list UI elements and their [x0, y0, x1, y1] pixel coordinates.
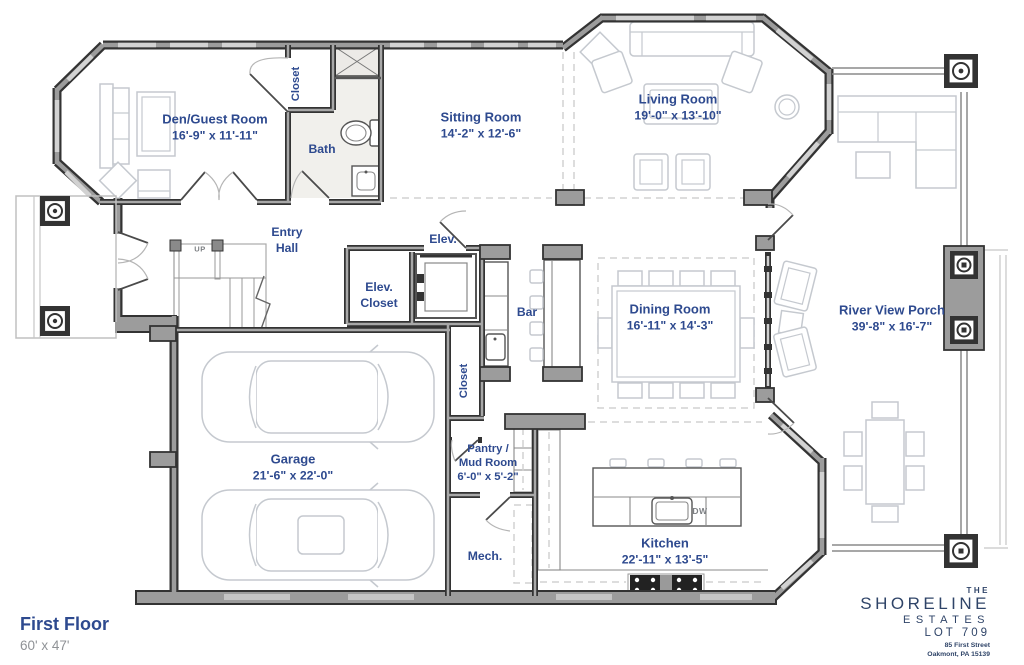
label-kitchen: Kitchen 22'-11" x 13'-5" — [622, 536, 709, 569]
brand-block: THE SHORELINE ESTATES LOT 709 85 First S… — [860, 586, 990, 660]
brand-type: ESTATES — [860, 614, 990, 626]
column-icon — [944, 54, 978, 88]
dining-table-set — [598, 271, 754, 398]
brand-name: SHORELINE — [860, 594, 990, 614]
dishwasher-annotation: DW — [692, 506, 707, 516]
label-garage: Garage 21'-6" x 22'-0" — [253, 452, 333, 485]
column-icon — [944, 534, 978, 568]
plan-title: First Floor — [20, 614, 109, 635]
room-dims: 39'-8" x 16'-7" — [839, 319, 945, 335]
room-dims: 16'-9" x 11'-11" — [162, 128, 267, 144]
room-dims: 21'-6" x 22'-0" — [253, 468, 333, 484]
room-dims: 14'-2" x 12'-6" — [441, 126, 522, 142]
elevator-cab — [416, 254, 476, 318]
label-elev-closet: Elev. Closet — [360, 280, 397, 312]
column-icon — [950, 251, 978, 279]
label-river-view-porch: River View Porch 39'-8" x 16'-7" — [839, 303, 945, 336]
label-pantry-mud-room: Pantry / Mud Room 6'-0" x 5'-2" — [457, 442, 518, 484]
front-double-door — [118, 232, 148, 290]
label-elev: Elev. — [429, 232, 457, 248]
brand-lot: LOT 709 — [860, 627, 990, 639]
room-name: Dining Room — [627, 302, 714, 319]
room-name: Den/Guest Room — [162, 112, 267, 129]
staircase — [170, 240, 270, 332]
stairs-up-annotation: UP — [194, 245, 205, 254]
room-name: Sitting Room — [441, 110, 522, 127]
room-dims: 16'-11" x 14'-3" — [627, 318, 714, 334]
column-icon — [40, 306, 70, 336]
label-closet-mid: Closet — [457, 364, 471, 399]
room-name: Garage — [253, 452, 333, 469]
column-icon — [40, 196, 70, 226]
plan-size: 60' x 47' — [20, 638, 109, 653]
label-living-room: Living Room 19'-0" x 13'-10" — [634, 92, 721, 125]
car-1 — [202, 345, 434, 449]
floor-plan: Den/Guest Room 16'-9" x 11'-11" Closet B… — [0, 0, 1024, 665]
mech-door — [486, 497, 510, 531]
label-closet-top: Closet — [289, 67, 303, 102]
label-entry-hall: Entry Hall — [271, 225, 302, 257]
column-icon — [950, 316, 978, 344]
porch-sectional-sofa — [838, 96, 956, 188]
porch-lounge-chairs — [773, 261, 817, 378]
room-dims: 22'-11" x 13'-5" — [622, 552, 709, 568]
porch-door-upper — [768, 204, 793, 240]
title-block: First Floor 60' x 47' — [20, 614, 109, 653]
den-french-doors — [181, 172, 257, 200]
kitchen-island — [593, 459, 741, 526]
room-name: Kitchen — [622, 536, 709, 553]
brand-address: 85 First Street Oakmont, PA 15139 — [860, 641, 990, 660]
label-den-guest-room: Den/Guest Room 16'-9" x 11'-11" — [162, 112, 267, 145]
label-sitting-room: Sitting Room 14'-2" x 12'-6" — [441, 110, 522, 143]
label-bar: Bar — [517, 305, 537, 321]
label-bath: Bath — [308, 142, 335, 158]
label-dining-room: Dining Room 16'-11" x 14'-3" — [627, 302, 714, 335]
room-dims: 19'-0" x 13'-10" — [634, 108, 721, 124]
label-mech: Mech. — [468, 549, 503, 565]
room-name: Living Room — [634, 92, 721, 109]
car-2 — [202, 483, 434, 587]
room-name: River View Porch — [839, 303, 945, 320]
hall-closet-door — [250, 58, 288, 112]
porch-dining-set — [844, 402, 924, 522]
